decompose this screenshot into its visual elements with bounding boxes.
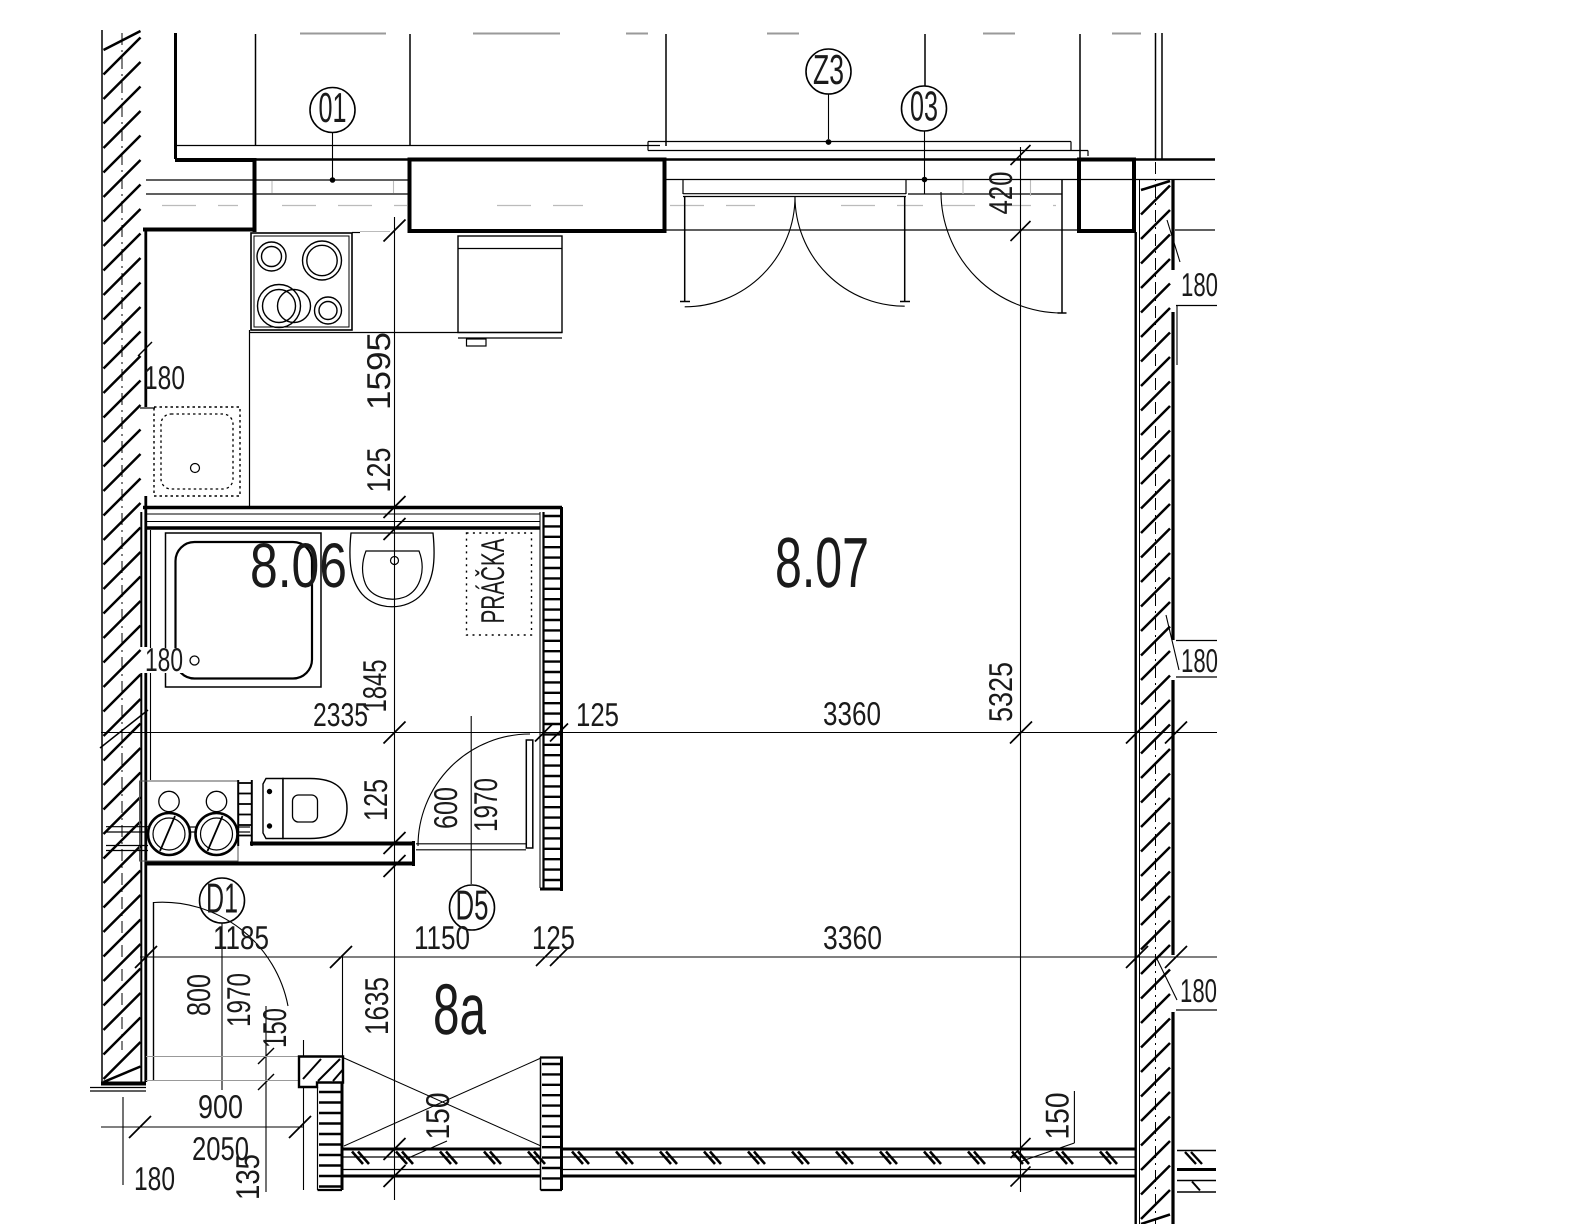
svg-text:03: 03 xyxy=(910,83,938,130)
svg-text:150: 150 xyxy=(256,1008,293,1048)
svg-text:8.07: 8.07 xyxy=(775,524,869,603)
svg-text:D1: D1 xyxy=(206,875,238,922)
svg-text:180: 180 xyxy=(1181,266,1218,303)
svg-text:8a: 8a xyxy=(433,970,487,1050)
svg-text:420: 420 xyxy=(982,172,1019,215)
svg-text:3360: 3360 xyxy=(823,919,882,956)
svg-text:180: 180 xyxy=(1180,972,1217,1009)
svg-text:125: 125 xyxy=(576,696,619,733)
svg-text:01: 01 xyxy=(319,84,347,131)
svg-text:180: 180 xyxy=(1181,642,1218,679)
svg-text:1185: 1185 xyxy=(213,919,269,956)
svg-text:1635: 1635 xyxy=(358,977,395,1035)
svg-text:125: 125 xyxy=(360,448,397,493)
svg-text:180: 180 xyxy=(144,359,185,396)
svg-text:125: 125 xyxy=(532,919,575,956)
svg-text:8.06: 8.06 xyxy=(250,531,347,601)
svg-text:600: 600 xyxy=(427,787,464,829)
svg-text:180: 180 xyxy=(134,1160,175,1197)
svg-text:PRÁČKA: PRÁČKA xyxy=(474,539,511,624)
svg-text:125: 125 xyxy=(357,779,394,821)
svg-text:1970: 1970 xyxy=(467,778,504,832)
svg-text:800: 800 xyxy=(180,974,217,1016)
svg-text:1845: 1845 xyxy=(356,660,393,713)
svg-text:1150: 1150 xyxy=(414,919,470,956)
svg-text:1595: 1595 xyxy=(360,332,397,410)
svg-text:5325: 5325 xyxy=(982,662,1019,722)
svg-text:180: 180 xyxy=(145,641,183,678)
svg-text:3360: 3360 xyxy=(823,695,881,732)
svg-text:900: 900 xyxy=(198,1088,243,1125)
svg-text:135: 135 xyxy=(229,1154,266,1200)
svg-text:Z3: Z3 xyxy=(813,46,844,93)
svg-text:1970: 1970 xyxy=(220,973,257,1027)
svg-text:150: 150 xyxy=(1039,1093,1076,1140)
